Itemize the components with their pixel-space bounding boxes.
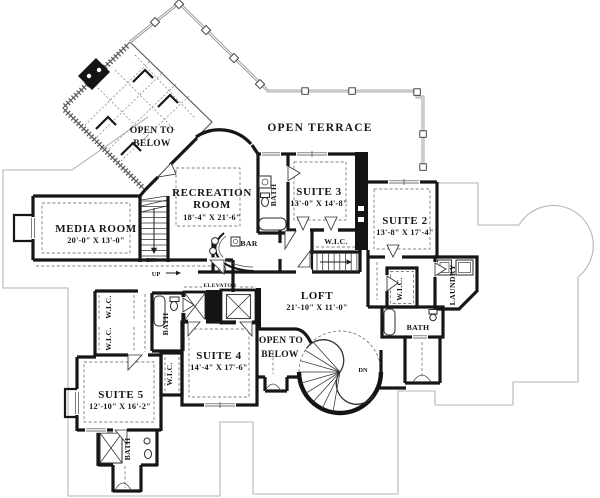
bath-suite5-label: BATH bbox=[123, 438, 132, 461]
toilet bbox=[145, 450, 152, 459]
toilet bbox=[262, 198, 269, 207]
wic-left-upper-label: W.I.C. bbox=[104, 295, 113, 318]
arched-window bbox=[115, 483, 131, 490]
wic-suite3-label: W.I.C. bbox=[324, 237, 347, 246]
bathtub bbox=[384, 309, 395, 335]
open-to-below-upper-line2: BELOW bbox=[133, 139, 171, 149]
suite4-label: SUITE 4 bbox=[196, 350, 241, 362]
deck-wing bbox=[63, 42, 212, 190]
bath-suite3-label: BATH bbox=[269, 184, 278, 207]
wic-suite4-label: W.I.C. bbox=[165, 362, 174, 385]
spiral-staircase bbox=[295, 332, 386, 413]
recreation-room-label: RECREATION bbox=[172, 187, 252, 199]
floor-plan-drawing: OPEN TERRACE OPEN TO BELOW RECREATION RO… bbox=[0, 0, 600, 498]
suite3-label: SUITE 3 bbox=[296, 186, 341, 198]
side-staircase bbox=[312, 252, 357, 272]
suite2-dims: 13'-8" X 17'-4" bbox=[376, 228, 433, 237]
wic-right-label: W.I.C. bbox=[395, 277, 404, 300]
door-frame-bracket bbox=[96, 117, 116, 129]
laundry-label: LAUNDRY bbox=[448, 265, 457, 306]
open-terrace-label: OPEN TERRACE bbox=[267, 122, 372, 134]
wic-left-lower-label: W.I.C. bbox=[104, 327, 113, 350]
open-to-below-center-line1: OPEN TO bbox=[259, 336, 303, 346]
suite2-label: SUITE 2 bbox=[382, 215, 427, 227]
dn-main-label: DN bbox=[146, 257, 156, 264]
bath-left-label: BATH bbox=[161, 313, 170, 336]
bathtub bbox=[259, 218, 286, 230]
open-to-below-upper-line1: OPEN TO bbox=[130, 126, 174, 136]
open-to-below-center-line2: BELOW bbox=[261, 350, 299, 360]
suite4-dims: 14'-4" X 17'-6" bbox=[190, 363, 247, 372]
door-frame-bracket bbox=[133, 70, 153, 82]
bar-stool bbox=[212, 238, 219, 245]
toilet-tank bbox=[170, 297, 179, 302]
toilet bbox=[171, 302, 178, 311]
bar-label: BAR bbox=[240, 239, 257, 248]
bar-stool bbox=[210, 248, 217, 255]
loft-dims: 21'-10" X 11'-0" bbox=[286, 303, 347, 312]
floor-plan-page: OPEN TERRACE OPEN TO BELOW RECREATION RO… bbox=[0, 0, 600, 498]
bar-sink bbox=[231, 237, 240, 246]
fireplace-chimney bbox=[78, 58, 110, 90]
loft-label: LOFT bbox=[301, 290, 333, 302]
bath-right-label: BATH bbox=[407, 323, 430, 332]
dn-spiral-label: DN bbox=[358, 367, 368, 374]
recreation-room-label2: ROOM bbox=[193, 199, 231, 211]
suite5-dims: 12'-10" X 16'-2" bbox=[89, 402, 151, 411]
elevator-label: ELEVATOR bbox=[203, 283, 237, 289]
up-main-label: UP bbox=[152, 271, 161, 278]
sink bbox=[144, 438, 150, 444]
toilet-tank bbox=[429, 310, 437, 315]
media-room-dims: 20'-0" X 13'-0" bbox=[67, 236, 124, 245]
elevator-block bbox=[184, 290, 256, 323]
suite5-label: SUITE 5 bbox=[98, 389, 143, 401]
recreation-room-dims: 18'-4" X 21'-6" bbox=[183, 213, 240, 222]
suite3-dims: 13'-0" X 14'-8" bbox=[290, 199, 347, 208]
toilet bbox=[430, 314, 436, 320]
media-room-label: MEDIA ROOM bbox=[55, 223, 136, 235]
